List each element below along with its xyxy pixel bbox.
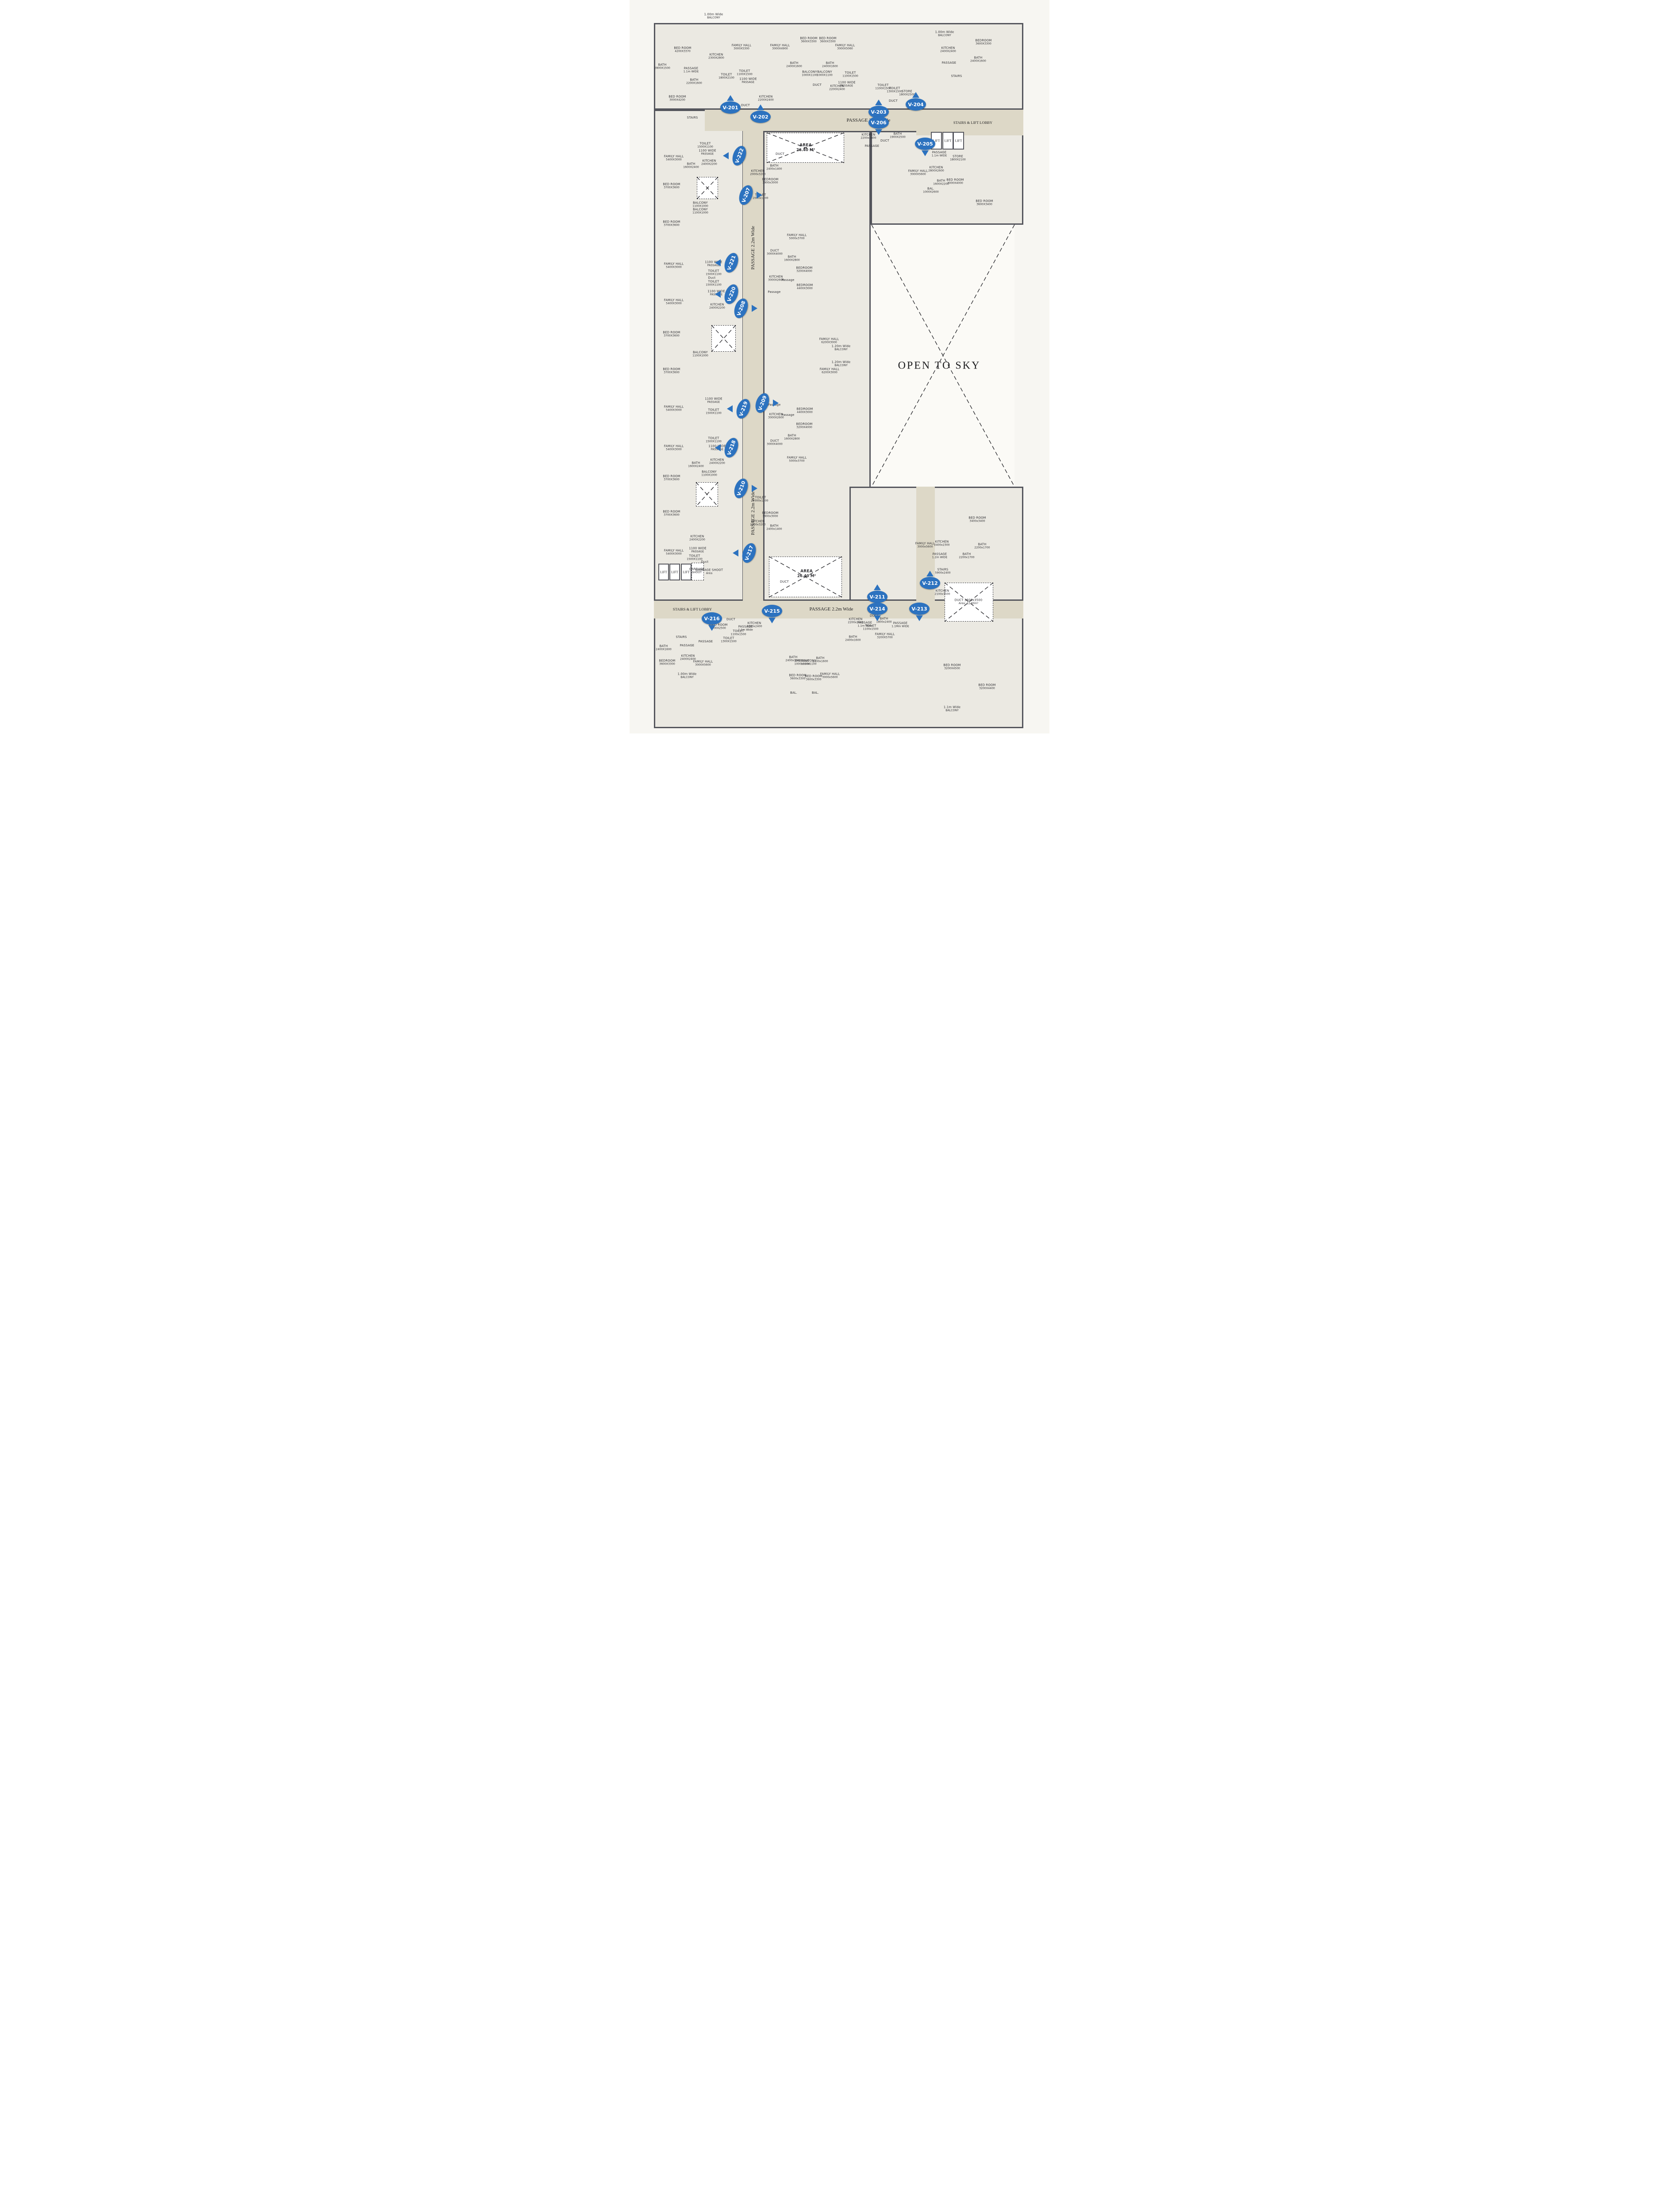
viewpoint-marker-v-202[interactable]: V-202 bbox=[750, 111, 771, 123]
duct-box bbox=[945, 583, 993, 622]
viewpoint-marker-v-209[interactable]: V-209 bbox=[752, 397, 772, 409]
marker-badge[interactable]: V-204 bbox=[906, 98, 926, 111]
marker-arrow-right-icon bbox=[773, 399, 779, 407]
plan-text: OPEN TO SKY bbox=[898, 360, 981, 372]
lift-box: LIFT bbox=[942, 132, 953, 150]
marker-badge[interactable]: V-205 bbox=[915, 138, 935, 150]
viewpoint-marker-v-220[interactable]: V-220 bbox=[721, 288, 742, 300]
lift-box: LIFT bbox=[953, 132, 964, 150]
viewpoint-marker-v-210[interactable]: V-210 bbox=[731, 482, 751, 495]
viewpoint-marker-v-217[interactable]: V-217 bbox=[739, 547, 759, 559]
marker-arrow-down-icon bbox=[916, 615, 923, 621]
building-block bbox=[654, 23, 1023, 110]
lift-box: LIFT bbox=[681, 564, 692, 580]
marker-badge[interactable]: V-202 bbox=[750, 111, 771, 123]
lift-label: LIFT bbox=[945, 139, 952, 143]
marker-arrow-down-icon bbox=[768, 618, 776, 623]
room-label: 1.00m WideBALCONY bbox=[704, 12, 723, 19]
room-dims: BALCONY bbox=[704, 16, 723, 19]
duct-box bbox=[697, 177, 718, 199]
viewpoint-marker-v-221[interactable]: V-221 bbox=[721, 257, 742, 269]
marker-arrow-up-icon bbox=[874, 584, 881, 590]
floor-plan: LIFTLIFTLIFTLIFTLIFTLIFT1.00m WideBALCON… bbox=[630, 0, 1049, 733]
viewpoint-marker-v-211[interactable]: V-211 bbox=[867, 591, 888, 603]
viewpoint-marker-v-201[interactable]: V-201 bbox=[720, 101, 741, 114]
lift-box: LIFT bbox=[669, 564, 680, 580]
marker-badge[interactable]: V-212 bbox=[920, 577, 940, 589]
marker-arrow-down-icon bbox=[874, 615, 881, 621]
viewpoint-marker-v-204[interactable]: V-204 bbox=[906, 98, 926, 111]
duct-box bbox=[711, 325, 736, 352]
viewpoint-marker-v-214[interactable]: V-214 bbox=[867, 603, 888, 615]
marker-badge[interactable]: V-213 bbox=[909, 603, 930, 615]
lift-label: LIFT bbox=[683, 570, 690, 574]
plan-text: STAIRS & LIFT LOBBY bbox=[953, 120, 992, 125]
marker-badge[interactable]: V-206 bbox=[868, 116, 889, 129]
duct-box bbox=[767, 133, 844, 163]
marker-arrow-left-icon bbox=[723, 152, 729, 159]
viewpoint-marker-v-212[interactable]: V-212 bbox=[920, 577, 940, 589]
viewpoint-marker-v-222[interactable]: V-222 bbox=[729, 150, 749, 162]
marker-arrow-up-icon bbox=[875, 100, 882, 105]
duct-box bbox=[769, 557, 842, 597]
marker-arrow-left-icon bbox=[715, 291, 721, 298]
plan-text: PASSAGE 2.2m Wide bbox=[750, 492, 756, 535]
lift-label: LIFT bbox=[955, 139, 962, 143]
viewpoint-marker-v-219[interactable]: V-219 bbox=[733, 403, 753, 415]
marker-badge[interactable]: V-216 bbox=[702, 612, 722, 625]
marker-arrow-up-icon bbox=[926, 571, 934, 576]
marker-arrow-up-icon bbox=[727, 95, 734, 101]
lift-label: LIFT bbox=[671, 570, 678, 574]
plan-text: PASSAGE 2.2m Wide bbox=[750, 226, 756, 270]
plan-text: PASSAGE 2.2m Wide bbox=[810, 607, 853, 612]
marker-badge[interactable]: V-201 bbox=[720, 101, 741, 114]
marker-arrow-down-icon bbox=[708, 625, 715, 631]
lift-label: LIFT bbox=[660, 570, 667, 574]
marker-badge[interactable]: V-211 bbox=[867, 591, 888, 603]
marker-arrow-up-icon bbox=[912, 92, 919, 98]
marker-arrow-right-icon bbox=[752, 305, 757, 312]
viewpoint-marker-v-216[interactable]: V-216 bbox=[702, 612, 722, 625]
viewpoint-marker-v-208[interactable]: V-208 bbox=[731, 302, 751, 315]
marker-badge[interactable]: V-214 bbox=[867, 603, 888, 615]
marker-arrow-left-icon bbox=[715, 259, 721, 266]
marker-arrow-left-icon bbox=[727, 405, 733, 412]
viewpoint-marker-v-207[interactable]: V-207 bbox=[736, 189, 756, 201]
viewpoint-marker-v-215[interactable]: V-215 bbox=[762, 605, 782, 617]
marker-arrow-left-icon bbox=[733, 549, 738, 557]
marker-arrow-right-icon bbox=[757, 192, 762, 199]
duct-box bbox=[696, 482, 718, 507]
marker-arrow-down-icon bbox=[875, 129, 882, 135]
marker-arrow-down-icon bbox=[922, 150, 929, 156]
marker-arrow-left-icon bbox=[715, 444, 721, 451]
viewpoint-marker-v-206[interactable]: V-206 bbox=[868, 116, 889, 129]
viewpoint-marker-v-213[interactable]: V-213 bbox=[909, 603, 930, 615]
viewpoint-marker-v-218[interactable]: V-218 bbox=[721, 442, 742, 454]
open-to-sky-void bbox=[872, 225, 1014, 487]
viewpoint-marker-v-205[interactable]: V-205 bbox=[915, 138, 935, 150]
marker-arrow-right-icon bbox=[752, 485, 757, 492]
room-name: 1.00m Wide bbox=[704, 12, 723, 16]
plan-text: STAIRS & LIFT LOBBY bbox=[673, 607, 712, 611]
marker-arrow-up-icon bbox=[757, 104, 764, 110]
marker-badge[interactable]: V-215 bbox=[762, 605, 782, 617]
duct-box bbox=[692, 563, 704, 580]
lift-box: LIFT bbox=[658, 564, 669, 580]
